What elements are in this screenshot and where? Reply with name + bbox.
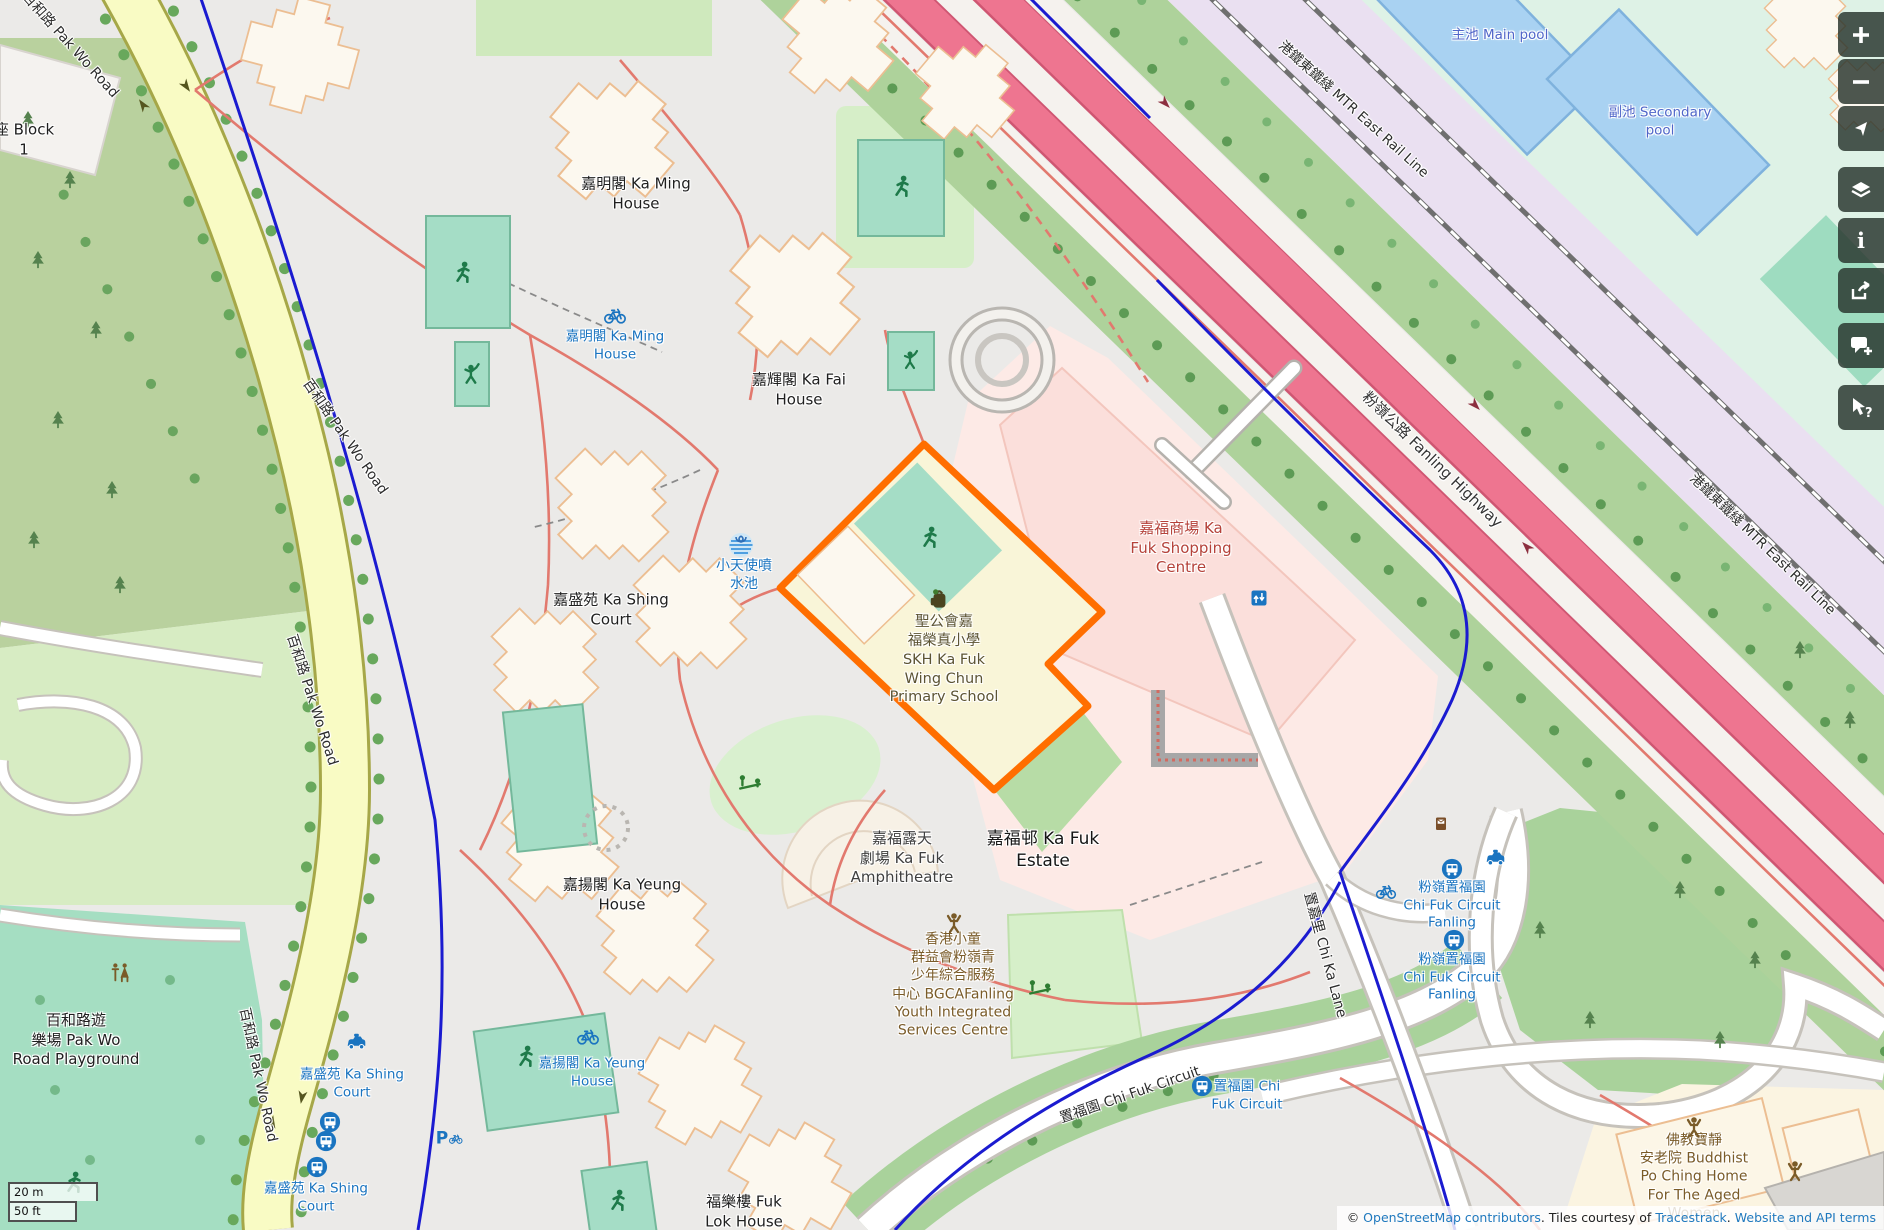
terms-link[interactable]: Website and API terms xyxy=(1735,1210,1876,1225)
layers-icon xyxy=(1850,180,1872,200)
osm-contributors-link[interactable]: OpenStreetMap contributors xyxy=(1363,1210,1541,1225)
scale-metric: 20 m xyxy=(8,1182,98,1201)
tracestrack-link[interactable]: Tracestrack xyxy=(1655,1210,1726,1225)
svg-text:?: ? xyxy=(1865,406,1873,419)
attribution-bar: © OpenStreetMap contributors. Tiles cour… xyxy=(1337,1206,1884,1230)
share-button[interactable] xyxy=(1838,268,1884,313)
attribution-middle-text: . Tiles courtesy of xyxy=(1541,1210,1655,1225)
basemap-art xyxy=(0,0,1884,1230)
note-plus-icon xyxy=(1849,335,1873,357)
query-features-button[interactable]: ? xyxy=(1838,385,1884,430)
locate-button[interactable] xyxy=(1838,106,1884,151)
minus-icon xyxy=(1851,72,1871,92)
copyright-symbol: © xyxy=(1347,1210,1363,1225)
layers-button[interactable] xyxy=(1838,167,1884,212)
zoom-out-button[interactable] xyxy=(1838,59,1884,104)
scale-bar: 20 m 50 ft xyxy=(8,1182,98,1222)
plus-icon xyxy=(1851,25,1871,45)
scale-imperial: 50 ft xyxy=(8,1201,77,1222)
map-canvas[interactable]: 座 Block 1 嘉明閣 Ka Ming House 嘉明閣 Ka Ming … xyxy=(0,0,1884,1230)
zoom-in-button[interactable] xyxy=(1838,12,1884,57)
info-button[interactable]: i xyxy=(1838,218,1884,263)
add-note-button[interactable] xyxy=(1838,323,1884,368)
attribution-separator: . xyxy=(1727,1210,1735,1225)
navigation-arrow-icon xyxy=(1851,119,1871,139)
share-icon xyxy=(1850,281,1872,301)
info-icon: i xyxy=(1857,230,1865,251)
cursor-question-icon: ? xyxy=(1849,397,1873,419)
